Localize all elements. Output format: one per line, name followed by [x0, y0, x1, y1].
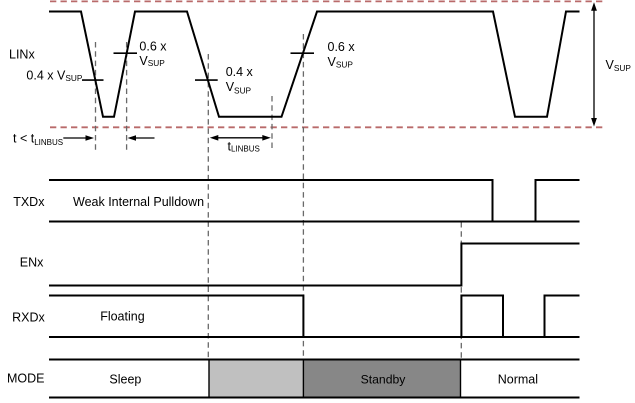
- svg-text:Weak Internal Pulldown: Weak Internal Pulldown: [73, 195, 204, 209]
- svg-text:RXDx: RXDx: [12, 310, 45, 324]
- svg-text:TXDx: TXDx: [13, 195, 45, 209]
- svg-text:Normal: Normal: [498, 372, 538, 386]
- svg-text:Standby: Standby: [361, 372, 407, 386]
- svg-text:0.6 x: 0.6 x: [139, 39, 167, 53]
- svg-text:0.6 x: 0.6 x: [328, 40, 356, 54]
- svg-text:ENx: ENx: [20, 256, 44, 270]
- svg-text:VSUP: VSUP: [328, 55, 354, 69]
- svg-text:t < tLINBUS: t < tLINBUS: [13, 131, 63, 147]
- svg-text:0.4 x VSUP: 0.4 x VSUP: [26, 68, 82, 83]
- svg-text:VSUP: VSUP: [226, 80, 252, 95]
- svg-text:LINx: LINx: [9, 47, 35, 61]
- svg-text:VSUP: VSUP: [606, 58, 632, 73]
- svg-text:Sleep: Sleep: [109, 372, 141, 386]
- svg-text:0.4 x: 0.4 x: [226, 65, 254, 79]
- svg-text:VSUP: VSUP: [139, 54, 165, 68]
- svg-text:tLINBUS: tLINBUS: [228, 139, 260, 153]
- svg-text:Floating: Floating: [100, 309, 145, 323]
- svg-text:MODE: MODE: [7, 372, 45, 386]
